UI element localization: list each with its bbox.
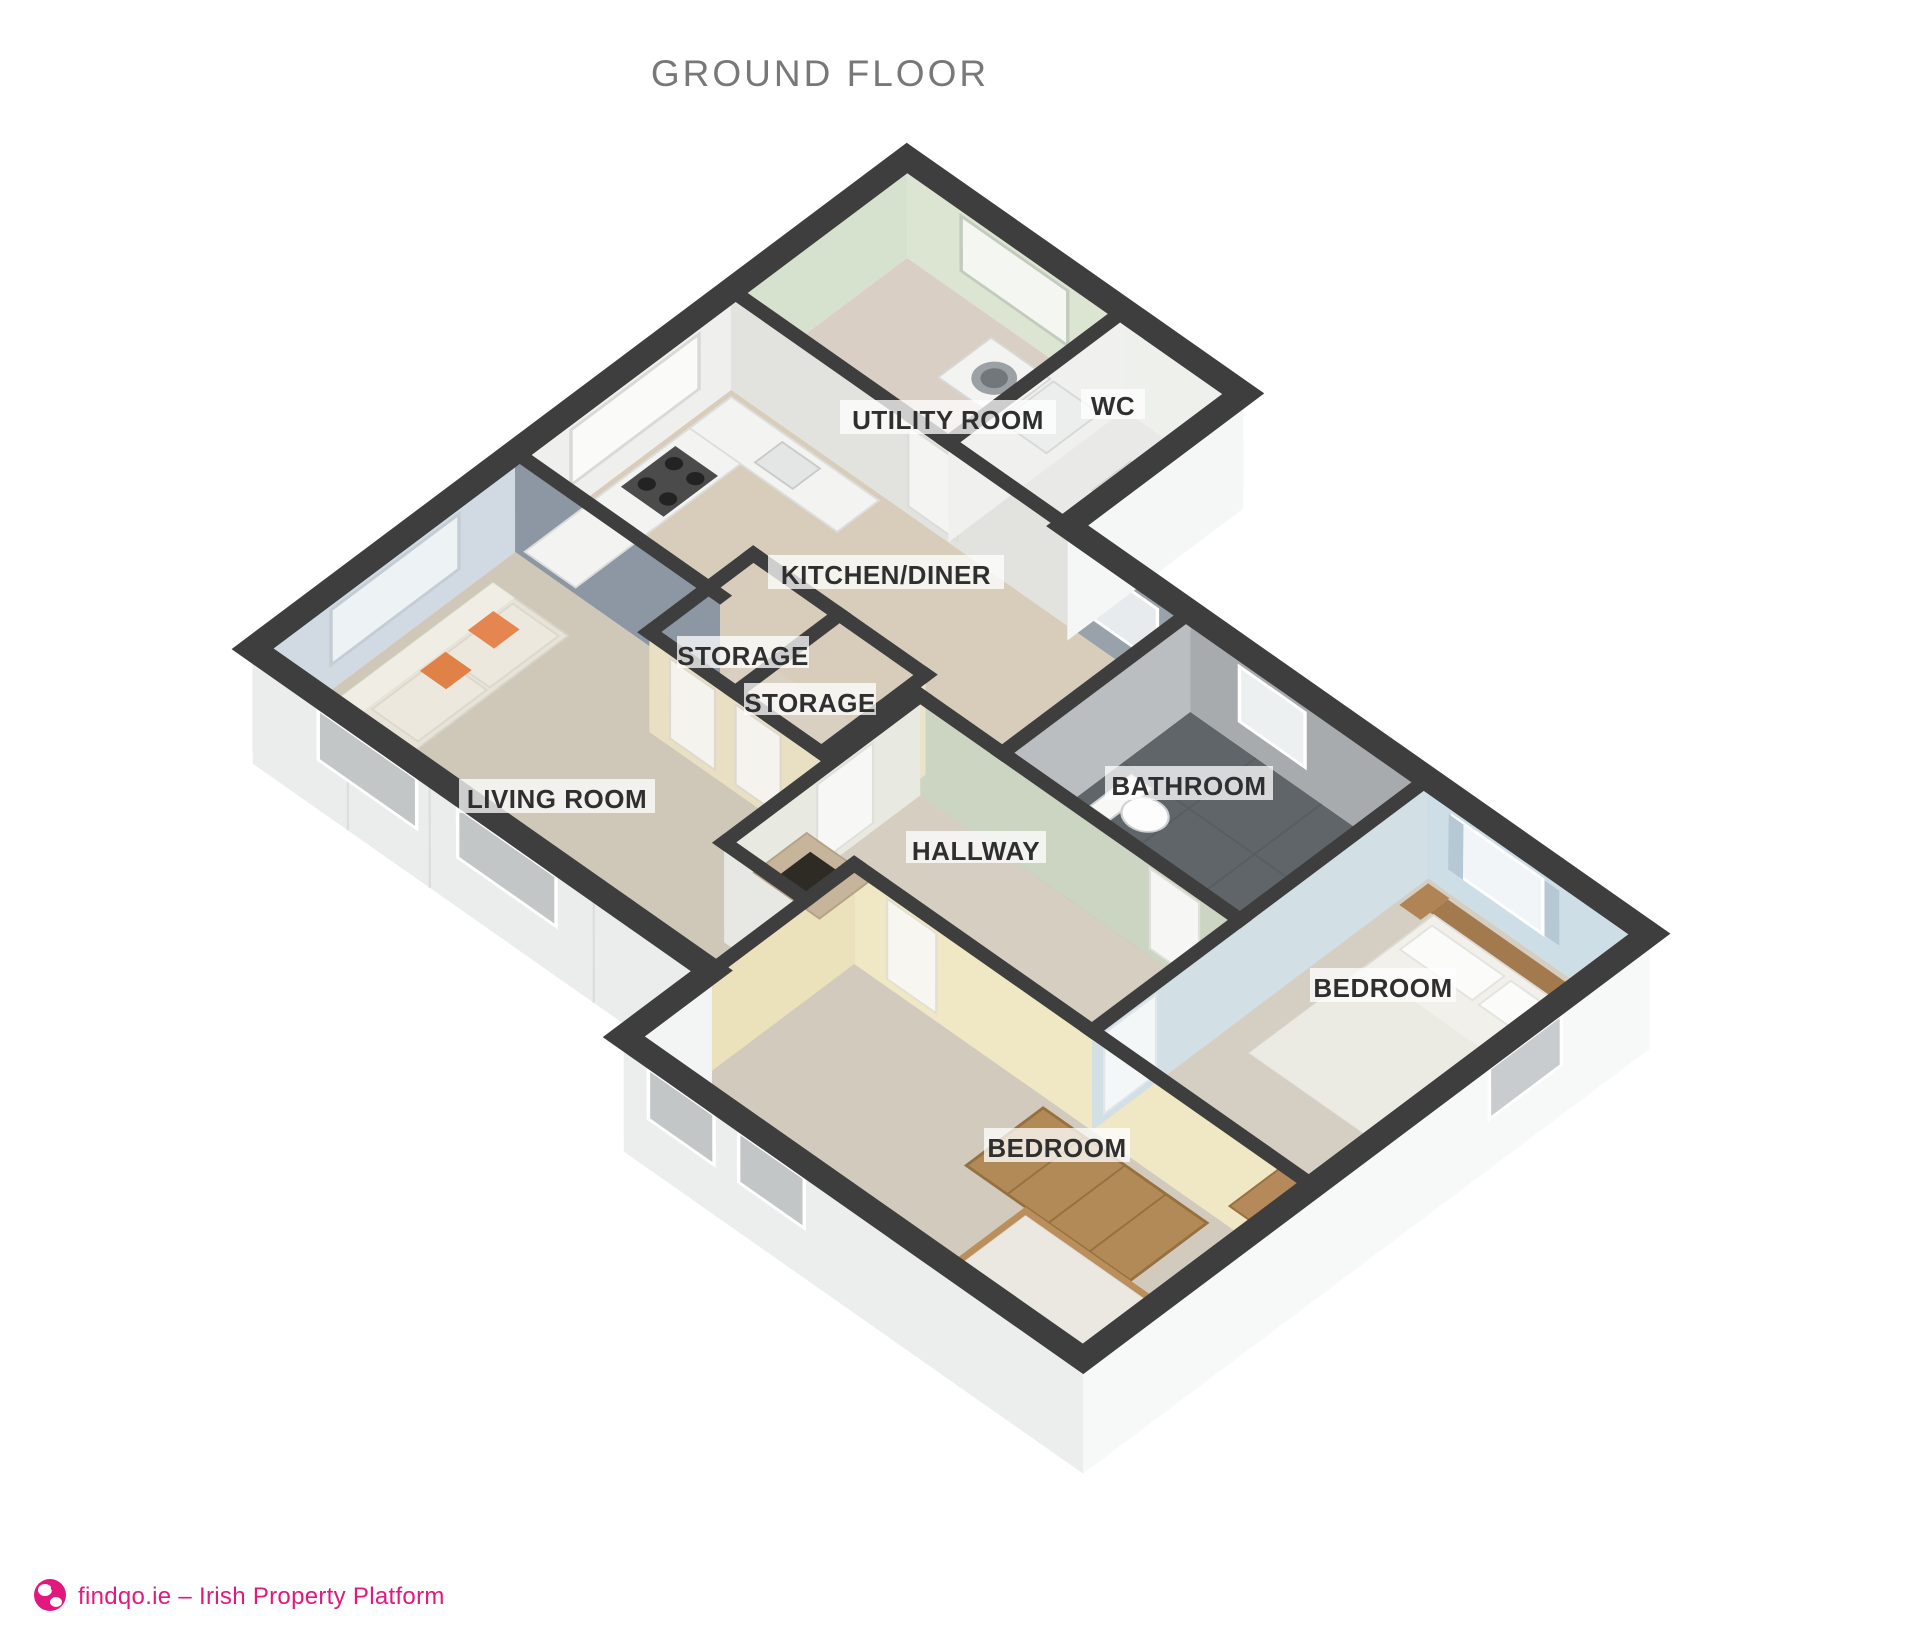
room-label-storage-1: STORAGE (677, 636, 809, 671)
floor-plan-3d (85, 158, 1904, 1474)
svg-text:STORAGE: STORAGE (744, 688, 876, 718)
page-title: GROUND FLOOR (651, 53, 989, 94)
room-label-kitchen-diner: KITCHEN/DINER (768, 555, 1004, 590)
room-label-bedroom-2: BEDROOM (984, 1128, 1130, 1163)
room-label-living-room: LIVING ROOM (459, 779, 655, 814)
svg-text:LIVING ROOM: LIVING ROOM (467, 784, 647, 814)
branding-text: findqo.ie – Irish Property Platform (78, 1583, 445, 1610)
svg-text:STORAGE: STORAGE (677, 641, 809, 671)
svg-text:BATHROOM: BATHROOM (1111, 771, 1266, 801)
svg-text:BEDROOM: BEDROOM (1313, 973, 1452, 1003)
svg-text:UTILITY ROOM: UTILITY ROOM (852, 405, 1044, 435)
svg-text:KITCHEN/DINER: KITCHEN/DINER (781, 560, 991, 590)
svg-text:BEDROOM: BEDROOM (987, 1133, 1126, 1163)
floor-plan-canvas: GROUND FLOOR (0, 0, 1920, 1638)
room-label-bathroom: BATHROOM (1105, 766, 1273, 801)
room-label-wc: WC (1081, 389, 1145, 421)
floor-plan-page: GROUND FLOOR (0, 0, 1920, 1638)
globe-icon (34, 1579, 66, 1611)
room-label-storage-2: STORAGE (744, 683, 876, 718)
room-label-hallway: HALLWAY (906, 831, 1046, 866)
room-label-utility-room: UTILITY ROOM (840, 400, 1056, 435)
svg-text:WC: WC (1091, 391, 1135, 421)
room-label-bedroom-1: BEDROOM (1310, 968, 1456, 1003)
branding: findqo.ie – Irish Property Platform (34, 1579, 445, 1611)
svg-text:HALLWAY: HALLWAY (912, 836, 1040, 866)
